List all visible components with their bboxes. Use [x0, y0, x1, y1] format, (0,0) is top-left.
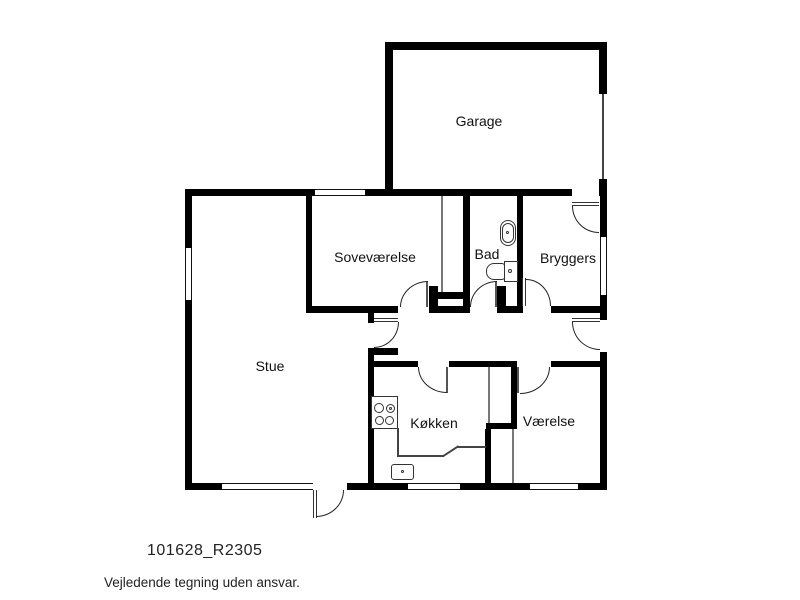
- burner-icon: [385, 416, 394, 425]
- wall-segment: [347, 483, 408, 490]
- drawing-number: 101628_R2305: [147, 542, 262, 560]
- burner-icon: [374, 403, 384, 413]
- closet-line: [488, 367, 490, 423]
- door-leaf: [517, 367, 519, 393]
- wall-segment: [449, 361, 515, 367]
- room-label-bad: Bad: [475, 246, 500, 262]
- burner-dot-icon: [389, 407, 392, 410]
- room-label-vaerelse: Værelse: [523, 413, 575, 429]
- wall-segment: [385, 42, 393, 196]
- closet-line: [512, 429, 514, 483]
- room-label-koekken: Køkken: [410, 415, 457, 431]
- stove-fixture: [371, 396, 398, 429]
- wall-segment: [599, 42, 607, 94]
- floor-plan: Garage Soveværelse Bad Bryggers Stue Køk…: [0, 0, 800, 600]
- wall-segment: [463, 196, 470, 313]
- door-arc: [316, 490, 344, 517]
- wall-segment: [185, 189, 572, 196]
- door-arc: [572, 322, 600, 350]
- door-arc: [418, 367, 447, 393]
- room-label-stue: Stue: [256, 358, 285, 374]
- wall-segment: [551, 306, 607, 313]
- door-arc: [400, 281, 428, 307]
- window: [222, 483, 313, 490]
- wall-segment: [600, 189, 607, 237]
- wall-segment: [385, 42, 607, 50]
- wall-segment: [185, 300, 192, 490]
- wall-segment: [600, 352, 607, 490]
- wall-segment: [306, 306, 398, 313]
- room-label-garage: Garage: [456, 113, 503, 129]
- room-label-bryggers: Bryggers: [540, 250, 596, 266]
- door-arc: [470, 281, 497, 307]
- garage-door: [602, 94, 604, 180]
- room-label-sovevaerelse: Soveværelse: [334, 249, 416, 265]
- counter-line: [397, 428, 399, 457]
- window: [185, 248, 192, 300]
- wall-segment: [368, 361, 418, 367]
- wall-segment: [485, 429, 491, 483]
- wall-segment: [551, 361, 605, 367]
- burner-icon: [375, 416, 384, 425]
- toilet-bowl: [486, 263, 505, 280]
- wall-segment: [185, 483, 222, 490]
- window: [600, 237, 607, 295]
- wardrobe-front-line: [441, 196, 443, 292]
- window: [408, 483, 460, 490]
- wall-segment: [460, 483, 530, 490]
- basin-drain-icon: [506, 231, 509, 234]
- door-arc: [374, 322, 399, 348]
- wall-segment: [437, 292, 466, 299]
- door-arc: [520, 367, 550, 394]
- wall-segment: [185, 189, 192, 248]
- door-arc: [572, 206, 599, 233]
- counter-line: [457, 446, 486, 448]
- wall-segment: [306, 196, 312, 313]
- sink-drain-icon: [401, 470, 404, 473]
- window: [530, 483, 578, 490]
- door-arc: [526, 279, 551, 306]
- window: [315, 189, 365, 196]
- disclaimer-text: Vejledende tegning uden ansvar.: [104, 575, 300, 590]
- counter-line: [397, 455, 444, 457]
- wall-segment: [497, 306, 523, 313]
- toilet-flush-icon: [508, 269, 512, 273]
